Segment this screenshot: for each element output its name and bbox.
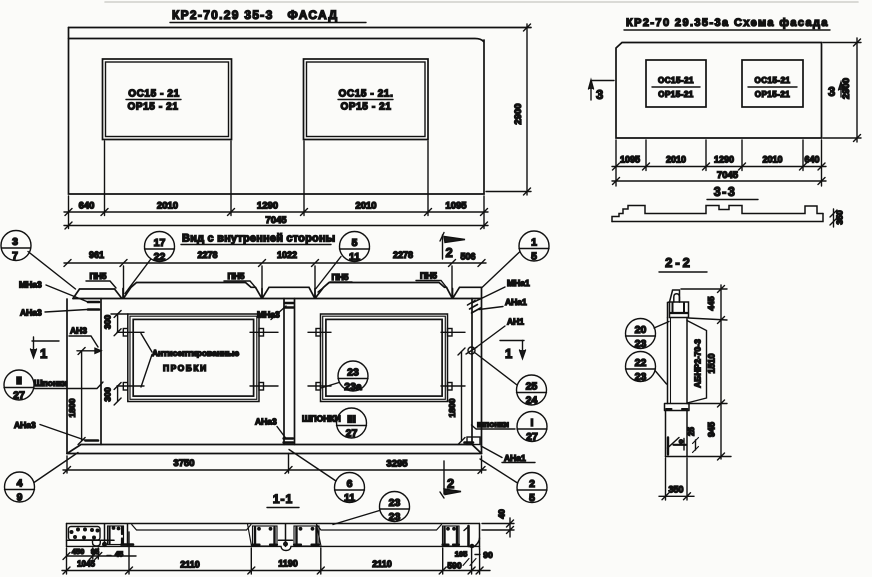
- svg-text:ОР15 - 21: ОР15 - 21: [128, 102, 179, 113]
- svg-text:1022: 1022: [277, 250, 297, 260]
- svg-text:II: II: [16, 375, 22, 387]
- svg-text:5: 5: [352, 237, 358, 249]
- svg-text:3: 3: [596, 87, 603, 102]
- svg-text:ОР15-21: ОР15-21: [658, 90, 694, 99]
- svg-text:2900: 2900: [841, 78, 852, 99]
- svg-text:445: 445: [706, 296, 716, 310]
- svg-text:ОС15-21: ОС15-21: [658, 76, 694, 85]
- svg-text:4: 4: [17, 478, 23, 490]
- svg-text:шпонки: шпонки: [477, 419, 509, 429]
- svg-text:1: 1: [505, 346, 512, 361]
- svg-text:1095: 1095: [445, 201, 467, 212]
- svg-text:7: 7: [12, 250, 18, 262]
- svg-text:2010: 2010: [157, 201, 178, 212]
- svg-text:1: 1: [40, 346, 47, 361]
- svg-text:ПН5: ПН5: [90, 271, 107, 281]
- svg-text:22: 22: [154, 251, 166, 263]
- svg-text:1045: 1045: [77, 560, 95, 569]
- svg-text:350: 350: [668, 485, 683, 495]
- svg-text:АН1: АН1: [507, 317, 524, 327]
- svg-text:23: 23: [635, 371, 647, 383]
- svg-text:1290: 1290: [714, 155, 734, 165]
- svg-text:11: 11: [344, 492, 355, 504]
- svg-text:7045: 7045: [717, 170, 739, 181]
- svg-text:3750: 3750: [173, 458, 194, 469]
- svg-text:2: 2: [447, 476, 454, 491]
- svg-text:АНа3: АНа3: [20, 308, 42, 318]
- svg-text:27: 27: [13, 390, 25, 402]
- svg-text:МНа3: МНа3: [19, 280, 42, 290]
- svg-text:АНа1: АНа1: [505, 297, 527, 307]
- svg-text:300: 300: [103, 387, 113, 401]
- svg-text:2010: 2010: [762, 155, 782, 165]
- svg-text:300: 300: [103, 315, 113, 329]
- svg-text:23: 23: [347, 367, 359, 379]
- svg-text:95: 95: [91, 547, 99, 556]
- svg-text:1095: 1095: [620, 155, 640, 165]
- svg-text:2900: 2900: [513, 103, 524, 124]
- svg-text:АНа3: АНа3: [14, 420, 36, 430]
- svg-text:ОС15-21: ОС15-21: [755, 76, 791, 85]
- svg-text:ОС15 - 21.: ОС15 - 21.: [339, 89, 394, 100]
- svg-text:1290: 1290: [257, 201, 278, 212]
- svg-text:1800: 1800: [67, 398, 77, 417]
- svg-text:22: 22: [635, 357, 647, 369]
- svg-text:КР2-70.29 35-3 ФАСАД: КР2-70.29 35-3 ФАСАД: [172, 8, 338, 22]
- svg-text:27: 27: [346, 428, 358, 440]
- svg-text:5: 5: [531, 251, 537, 263]
- svg-text:2-2: 2-2: [665, 255, 693, 270]
- svg-text:2: 2: [529, 478, 535, 490]
- svg-text:Вид с внутренней стороны: Вид с внутренней стороны: [182, 233, 335, 245]
- svg-text:450: 450: [72, 547, 85, 556]
- svg-text:АБНР2-70-3: АБНР2-70-3: [693, 339, 703, 388]
- svg-text:40: 40: [497, 509, 507, 519]
- svg-text:ПРОБКИ: ПРОБКИ: [163, 363, 208, 373]
- svg-text:3: 3: [12, 236, 18, 248]
- svg-text:165: 165: [455, 550, 468, 559]
- svg-text:ШПОНКИ: ШПОНКИ: [302, 414, 341, 424]
- svg-text:7045: 7045: [265, 215, 287, 226]
- svg-text:27: 27: [526, 431, 538, 443]
- svg-text:3-3: 3-3: [714, 185, 737, 199]
- svg-text:961: 961: [89, 250, 104, 260]
- svg-text:23а: 23а: [344, 381, 362, 393]
- svg-text:КР2-70 29.35-3а Схема фасада: КР2-70 29.35-3а Схема фасада: [626, 17, 829, 29]
- svg-text:ОР15 - 21: ОР15 - 21: [341, 102, 392, 113]
- svg-text:20: 20: [635, 324, 647, 336]
- svg-text:III: III: [347, 414, 356, 426]
- svg-text:АН3: АН3: [70, 326, 87, 336]
- svg-text:90: 90: [483, 550, 493, 560]
- svg-text:590: 590: [447, 561, 461, 571]
- svg-text:6: 6: [347, 478, 353, 490]
- svg-text:24: 24: [526, 395, 538, 407]
- svg-text:5: 5: [529, 492, 535, 504]
- svg-text:1-1: 1-1: [273, 492, 293, 506]
- svg-text:1190: 1190: [278, 559, 298, 569]
- svg-text:2: 2: [446, 245, 453, 260]
- svg-text:ПН5: ПН5: [332, 272, 349, 282]
- svg-text:23: 23: [389, 511, 401, 523]
- svg-text:23: 23: [389, 497, 401, 509]
- svg-text:3: 3: [828, 84, 835, 99]
- svg-text:11: 11: [349, 251, 360, 263]
- svg-text:25: 25: [687, 427, 696, 436]
- svg-text:23: 23: [635, 338, 647, 350]
- svg-text:2010: 2010: [666, 155, 686, 165]
- svg-text:45: 45: [115, 550, 123, 559]
- svg-text:ПН5: ПН5: [228, 271, 245, 281]
- svg-text:2110: 2110: [180, 560, 200, 570]
- svg-text:Антисептированные: Антисептированные: [152, 348, 239, 358]
- svg-text:17: 17: [154, 237, 166, 249]
- svg-text:1: 1: [531, 237, 537, 249]
- svg-text:I: I: [531, 417, 534, 429]
- svg-text:2278: 2278: [393, 250, 413, 260]
- svg-text:2278: 2278: [197, 250, 217, 260]
- svg-text:АНа1: АНа1: [504, 453, 526, 463]
- svg-text:2110: 2110: [372, 559, 392, 569]
- svg-text:25: 25: [526, 381, 538, 393]
- svg-text:640: 640: [79, 201, 95, 212]
- svg-text:ОР15-21: ОР15-21: [755, 90, 791, 99]
- svg-text:945: 945: [707, 422, 717, 437]
- svg-text:1800: 1800: [447, 398, 457, 417]
- svg-text:1510: 1510: [707, 353, 717, 373]
- svg-text:ОС15 - 21: ОС15 - 21: [128, 89, 180, 100]
- svg-text:3295: 3295: [386, 459, 408, 470]
- svg-text:9: 9: [17, 492, 23, 504]
- svg-text:2010: 2010: [355, 201, 376, 212]
- svg-text:АНа3: АНа3: [255, 417, 277, 427]
- svg-text:506: 506: [460, 252, 475, 262]
- svg-text:350: 350: [835, 210, 845, 224]
- svg-text:ПН5: ПН5: [420, 271, 437, 281]
- svg-text:Шпонки: Шпонки: [34, 378, 67, 388]
- svg-text:МНа1: МНа1: [507, 278, 530, 288]
- svg-text:640: 640: [804, 155, 819, 165]
